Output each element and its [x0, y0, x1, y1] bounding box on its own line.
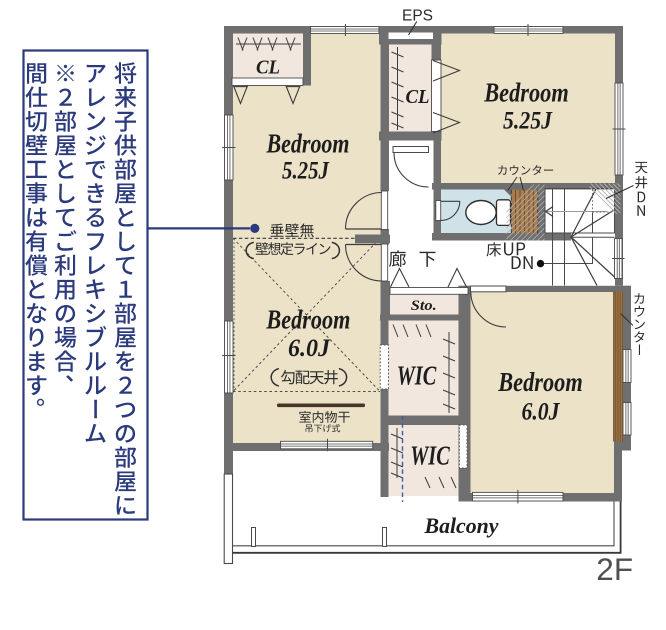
svg-text:CL: CL	[256, 57, 280, 79]
svg-text:Bedroom: Bedroom	[266, 129, 350, 159]
svg-text:Bedroom: Bedroom	[266, 306, 351, 335]
svg-text:2F: 2F	[596, 551, 633, 587]
svg-text:WIC: WIC	[410, 442, 450, 471]
svg-text:5.25J: 5.25J	[282, 156, 330, 184]
svg-text:CL: CL	[406, 87, 430, 109]
svg-text:Balcony: Balcony	[424, 513, 499, 538]
svg-text:Bedroom: Bedroom	[483, 79, 568, 108]
svg-text:Sto.: Sto.	[411, 298, 437, 314]
svg-text:EPS: EPS	[402, 7, 433, 24]
svg-text:6.0J: 6.0J	[288, 335, 331, 363]
svg-text:6.0J: 6.0J	[522, 398, 561, 426]
svg-text:Bedroom: Bedroom	[497, 368, 582, 397]
svg-text:5.25J: 5.25J	[503, 107, 553, 135]
svg-text:WIC: WIC	[397, 362, 437, 391]
